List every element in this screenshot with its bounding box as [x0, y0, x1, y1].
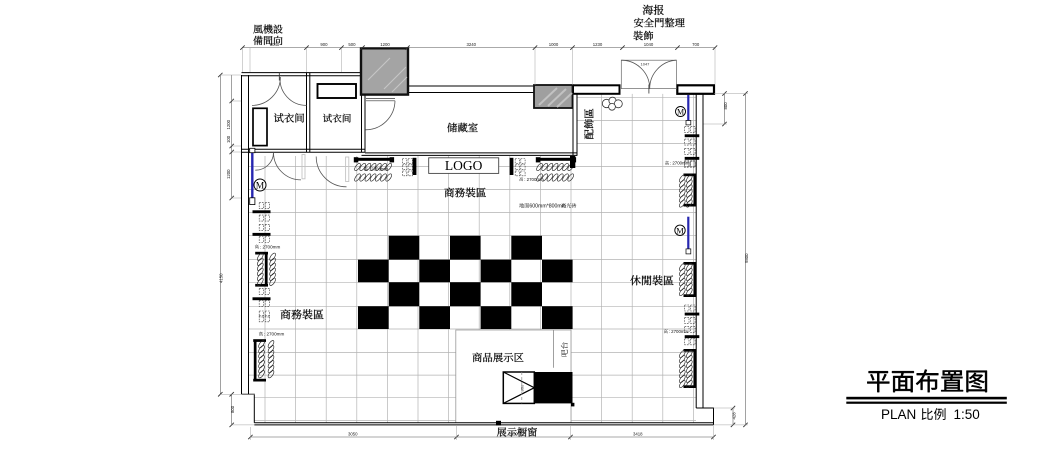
svg-text:M: M — [676, 225, 684, 235]
svg-text:M: M — [256, 182, 265, 192]
svg-text:: 2700mm: : 2700mm — [264, 332, 285, 337]
svg-text:3050: 3050 — [348, 432, 358, 437]
svg-text:: 2700mm: : 2700mm — [369, 167, 389, 172]
svg-text:1047: 1047 — [641, 61, 651, 66]
svg-text:: 2700mm: : 2700mm — [524, 177, 544, 182]
svg-text:800: 800 — [230, 405, 235, 413]
svg-text:3240: 3240 — [467, 42, 477, 47]
svg-text:1200: 1200 — [380, 42, 390, 47]
svg-text:800: 800 — [519, 384, 524, 391]
svg-text:: 2700mm: : 2700mm — [670, 161, 690, 166]
svg-text:1040: 1040 — [644, 42, 654, 47]
svg-text:3418: 3418 — [633, 432, 643, 437]
svg-text:1230: 1230 — [593, 42, 603, 47]
svg-text:500: 500 — [348, 42, 356, 47]
svg-text:600mm*800mm: 600mm*800mm — [529, 204, 566, 210]
svg-text:800: 800 — [723, 102, 728, 110]
svg-text:100: 100 — [226, 135, 231, 143]
svg-text:900: 900 — [320, 42, 328, 47]
svg-text:1040: 1040 — [270, 42, 280, 47]
svg-text:M: M — [677, 107, 684, 116]
svg-text:: 2700mm: : 2700mm — [260, 244, 281, 249]
svg-text:1200: 1200 — [226, 169, 231, 179]
svg-text:PLAN: PLAN — [881, 407, 916, 422]
svg-text:1:50: 1:50 — [954, 407, 980, 422]
svg-text:1000: 1000 — [549, 42, 559, 47]
svg-text:1200: 1200 — [226, 119, 231, 129]
svg-text:LOGO: LOGO — [445, 158, 483, 173]
svg-text:428: 428 — [731, 412, 736, 420]
svg-text:2050: 2050 — [508, 432, 518, 437]
svg-text:700: 700 — [692, 42, 700, 47]
svg-text:4150: 4150 — [219, 273, 224, 283]
svg-text:: 2700mm: : 2700mm — [669, 329, 689, 334]
svg-text:9800: 9800 — [744, 253, 749, 263]
